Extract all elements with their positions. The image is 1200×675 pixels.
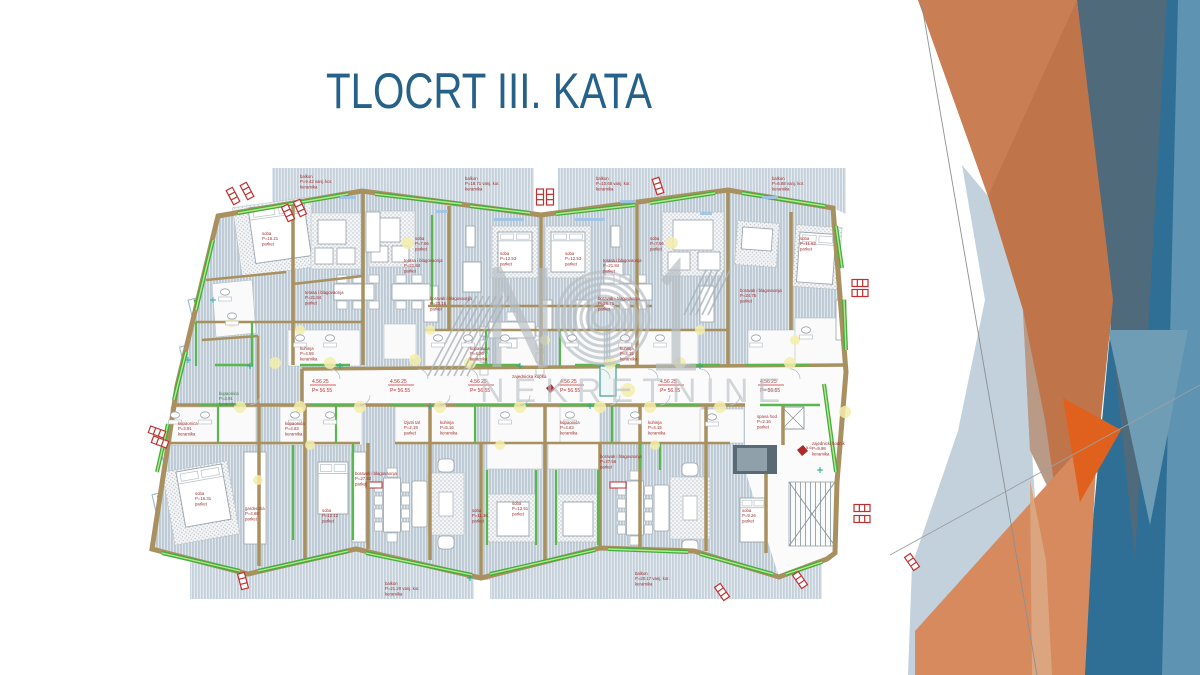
svg-text:parket: parket bbox=[430, 306, 443, 311]
svg-text:parket: parket bbox=[742, 518, 755, 523]
svg-text:keramika: keramika bbox=[596, 186, 614, 191]
svg-text:parket: parket bbox=[195, 501, 208, 506]
svg-text:parket: parket bbox=[355, 481, 368, 486]
svg-text:keramika: keramika bbox=[219, 401, 237, 406]
svg-text:keramika: keramika bbox=[560, 430, 578, 435]
svg-text:parket: parket bbox=[565, 261, 578, 266]
svg-text:keramika: keramika bbox=[300, 184, 318, 189]
svg-text:parket: parket bbox=[603, 268, 616, 273]
svg-text:keramika: keramika bbox=[648, 430, 666, 435]
svg-text:parket: parket bbox=[650, 246, 663, 251]
svg-text:parket: parket bbox=[598, 306, 611, 311]
svg-text:parket: parket bbox=[472, 518, 485, 523]
svg-text:keramika: keramika bbox=[465, 186, 483, 191]
svg-text:parket: parket bbox=[800, 246, 813, 251]
svg-text:NEKRETNINE: NEKRETNINE bbox=[480, 372, 789, 410]
svg-text:keramika: keramika bbox=[300, 356, 318, 361]
svg-text:keramika: keramika bbox=[178, 431, 196, 436]
svg-text:P= 56.55: P= 56.55 bbox=[312, 388, 332, 394]
svg-text:keramika: keramika bbox=[440, 430, 458, 435]
svg-text:parket: parket bbox=[415, 246, 428, 251]
svg-text:P= 56.55: P= 56.55 bbox=[390, 388, 410, 394]
svg-text:parket: parket bbox=[600, 464, 613, 469]
svg-text:4.56 25: 4.56 25 bbox=[312, 379, 329, 385]
svg-text:keramika: keramika bbox=[285, 431, 303, 436]
svg-text:TLOCRT III. KATA: TLOCRT III. KATA bbox=[326, 63, 653, 119]
svg-text:keramika: keramika bbox=[772, 186, 790, 191]
svg-text:4.56 25: 4.56 25 bbox=[390, 379, 407, 385]
svg-text:parket: parket bbox=[500, 261, 513, 266]
svg-text:parket: parket bbox=[740, 298, 753, 303]
svg-text:parket: parket bbox=[404, 268, 417, 273]
svg-text:keramika: keramika bbox=[470, 356, 488, 361]
svg-text:keramika: keramika bbox=[812, 451, 830, 456]
svg-text:parket: parket bbox=[757, 424, 770, 429]
svg-text:parket: parket bbox=[305, 300, 318, 305]
svg-text:parket: parket bbox=[512, 511, 525, 516]
svg-text:parket: parket bbox=[262, 241, 275, 246]
svg-text:keramika: keramika bbox=[385, 591, 403, 596]
svg-text:parket: parket bbox=[404, 430, 417, 435]
svg-text:parket: parket bbox=[322, 518, 335, 523]
svg-text:parket: parket bbox=[245, 516, 258, 521]
svg-text:keramika: keramika bbox=[635, 581, 653, 586]
svg-text:keramika: keramika bbox=[620, 356, 638, 361]
